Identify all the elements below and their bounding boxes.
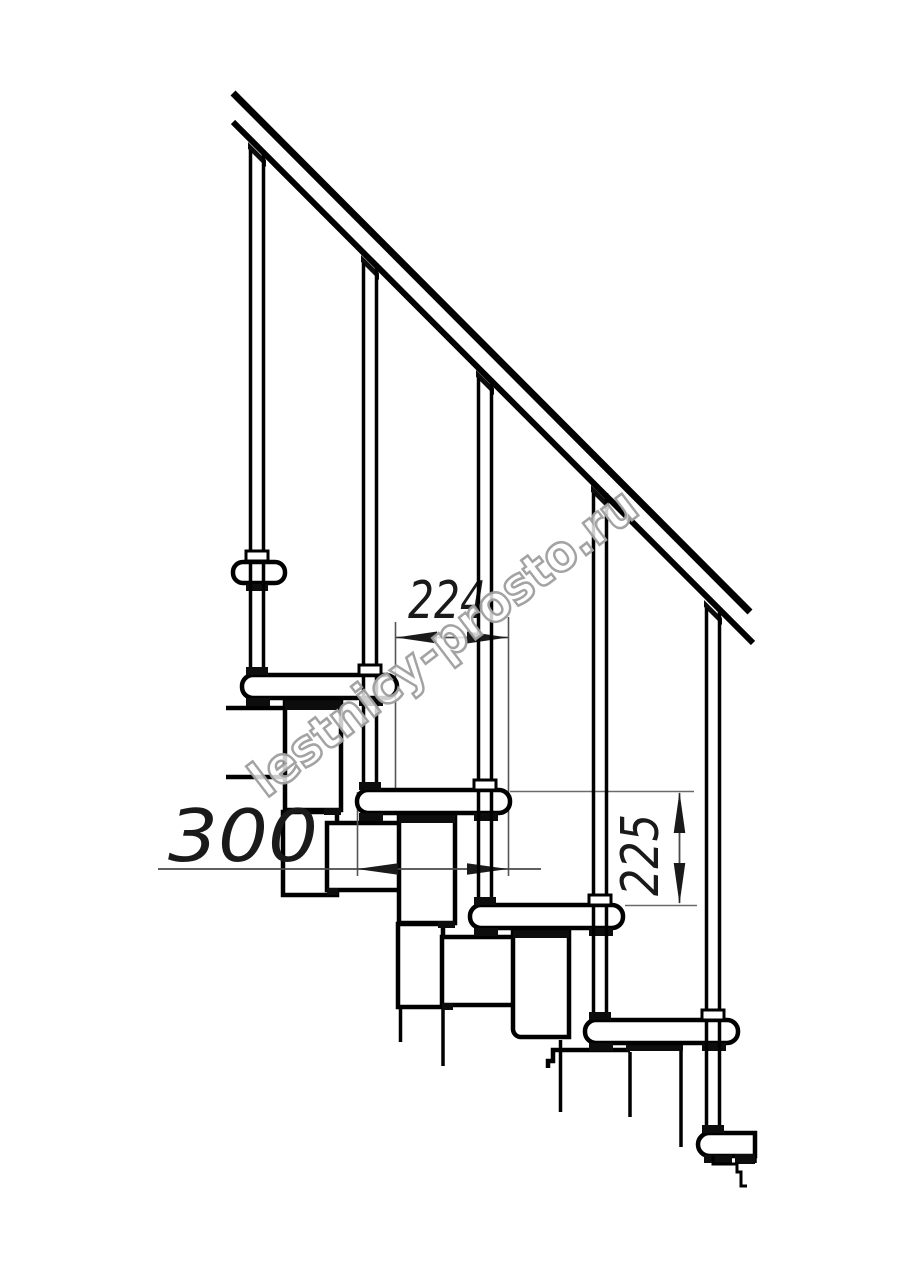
module-box <box>327 823 403 890</box>
baluster-5 <box>702 600 724 1133</box>
dimension-label-width: 300 <box>168 794 318 878</box>
module-box <box>442 937 517 1005</box>
module-box <box>513 929 569 1037</box>
tread-4 <box>585 1020 738 1043</box>
module-box <box>398 924 443 1007</box>
watermark: lestnicy-prosto.ru <box>238 476 649 808</box>
baluster-1 <box>246 142 268 675</box>
tread-3 <box>470 905 623 928</box>
tread-2 <box>357 790 510 813</box>
dimension-rise-225: 225 <box>510 792 697 906</box>
staircase-drawing-page: 224 300 225 <box>0 0 914 1280</box>
arrow-down-icon <box>674 863 686 904</box>
dimension-label-rise: 225 <box>611 814 671 896</box>
arrow-right-icon <box>467 863 508 875</box>
staircase-side-view-drawing: 224 300 225 <box>0 0 914 1280</box>
arrow-up-icon <box>674 792 686 833</box>
tread-upper-fragment <box>233 562 285 583</box>
tread-5-clipped <box>698 1133 755 1156</box>
